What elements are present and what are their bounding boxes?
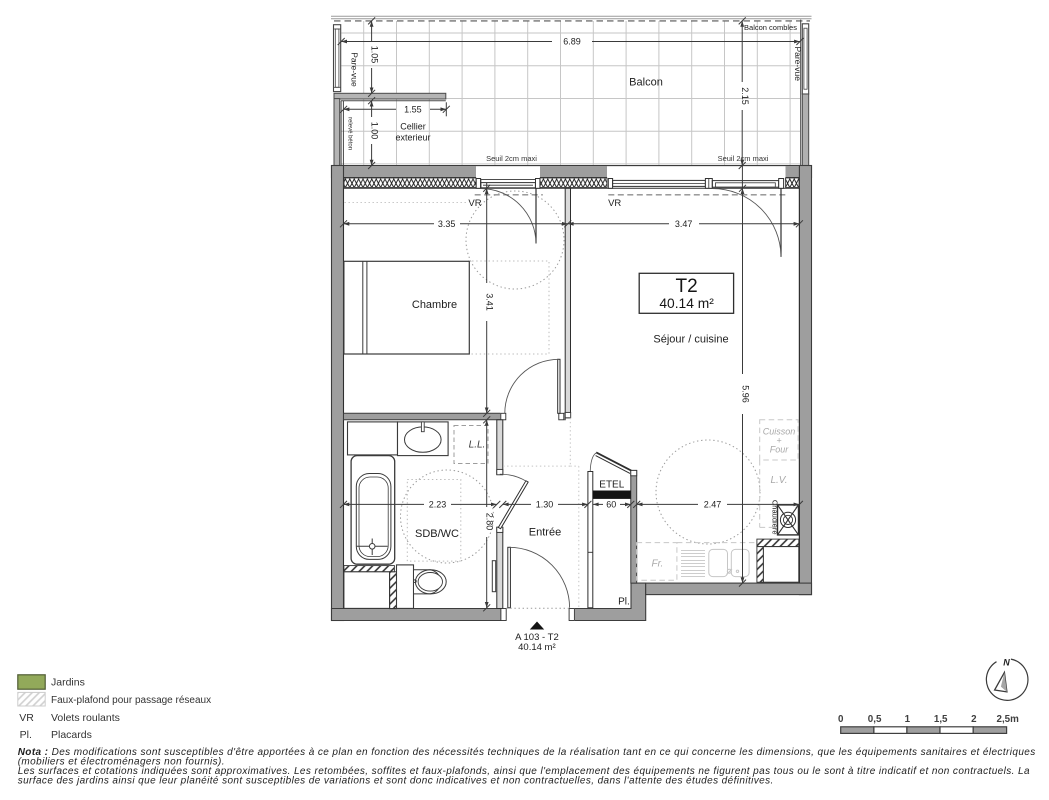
svg-text:Balcon combles: Balcon combles (744, 23, 797, 32)
svg-text:2.15: 2.15 (740, 87, 750, 105)
svg-text:Balcon: Balcon (629, 77, 663, 89)
svg-text:ETEL: ETEL (599, 480, 624, 491)
svg-text:3.35: 3.35 (438, 219, 456, 229)
svg-text:Pare-vue: Pare-vue (793, 46, 803, 81)
svg-text:6.89: 6.89 (563, 37, 581, 47)
svg-text:L.V.: L.V. (770, 475, 787, 486)
svg-text:2.80: 2.80 (485, 513, 495, 531)
svg-text:5.96: 5.96 (741, 385, 751, 403)
svg-text:VR: VR (468, 198, 481, 209)
svg-text:Fr.: Fr. (651, 559, 663, 570)
svg-text:Faux-plafond pour passage rése: Faux-plafond pour passage réseaux (51, 695, 211, 706)
svg-text:Pl.: Pl. (618, 597, 630, 608)
svg-text:1.00: 1.00 (370, 122, 380, 140)
svg-text:0: 0 (838, 714, 844, 725)
svg-text:Pare-vue: Pare-vue (350, 52, 360, 87)
svg-text:A 103 - T2: A 103 - T2 (515, 632, 559, 643)
svg-text:2: 2 (971, 714, 977, 725)
svg-text:Séjour / cuisine: Séjour / cuisine (653, 334, 728, 346)
svg-text:2.47: 2.47 (704, 500, 722, 510)
svg-text:Seuil 2cm maxi: Seuil 2cm maxi (486, 154, 537, 163)
svg-text:1,5: 1,5 (934, 714, 948, 725)
svg-text:Entrée: Entrée (529, 527, 561, 539)
svg-text:3.41: 3.41 (485, 293, 495, 311)
svg-text:1.55: 1.55 (404, 105, 422, 115)
svg-text:exterieur: exterieur (395, 133, 430, 143)
svg-text:2,5m: 2,5m (997, 714, 1020, 725)
svg-text:1.30: 1.30 (536, 500, 554, 510)
svg-text:T2: T2 (676, 276, 698, 297)
svg-text:relevé béton: relevé béton (346, 117, 352, 150)
svg-text:40.14 m²: 40.14 m² (518, 642, 556, 653)
svg-text:N: N (1003, 658, 1010, 668)
svg-text:Chambre: Chambre (412, 299, 457, 311)
svg-text:3.47: 3.47 (675, 219, 693, 229)
svg-text:Placards: Placards (51, 729, 92, 741)
svg-text:60: 60 (606, 500, 616, 510)
svg-text:1.05: 1.05 (370, 46, 380, 64)
svg-text:Cellier: Cellier (400, 122, 426, 132)
svg-text:0,5: 0,5 (868, 714, 882, 725)
svg-text:2.23: 2.23 (429, 500, 447, 510)
svg-text:1: 1 (905, 714, 911, 725)
svg-text:VR: VR (19, 712, 34, 724)
svg-text:SDB/WC: SDB/WC (415, 528, 459, 540)
svg-text:Pl.: Pl. (20, 729, 32, 741)
svg-text:Four: Four (770, 445, 790, 455)
svg-text:VR: VR (608, 198, 621, 209)
svg-text:40.14 m²: 40.14 m² (659, 296, 714, 311)
svg-text:L.L.: L.L. (469, 440, 486, 451)
svg-text:Volets roulants: Volets roulants (51, 712, 120, 724)
svg-text:Jardins: Jardins (51, 677, 85, 689)
svg-text:surface des jardins ainsi que: surface des jardins ainsi que leur plané… (18, 776, 774, 787)
